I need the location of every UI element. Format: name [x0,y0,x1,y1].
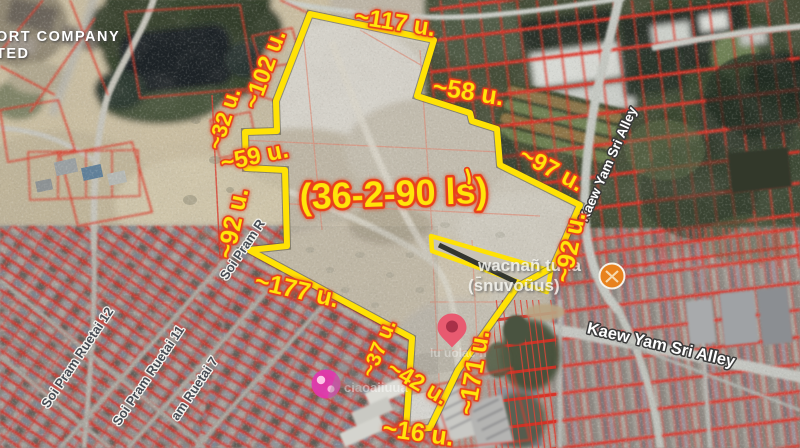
svg-text:(36-2-90 ls): (36-2-90 ls) [299,170,488,218]
svg-text:(s̄nuvoũus): (s̄nuvoũus) [468,276,560,295]
svg-text:ORT COMPANY: ORT COMPANY [0,29,120,45]
svg-text:TED: TED [0,46,30,62]
svg-text:A: A [326,347,366,410]
svg-text:R: R [682,257,711,301]
